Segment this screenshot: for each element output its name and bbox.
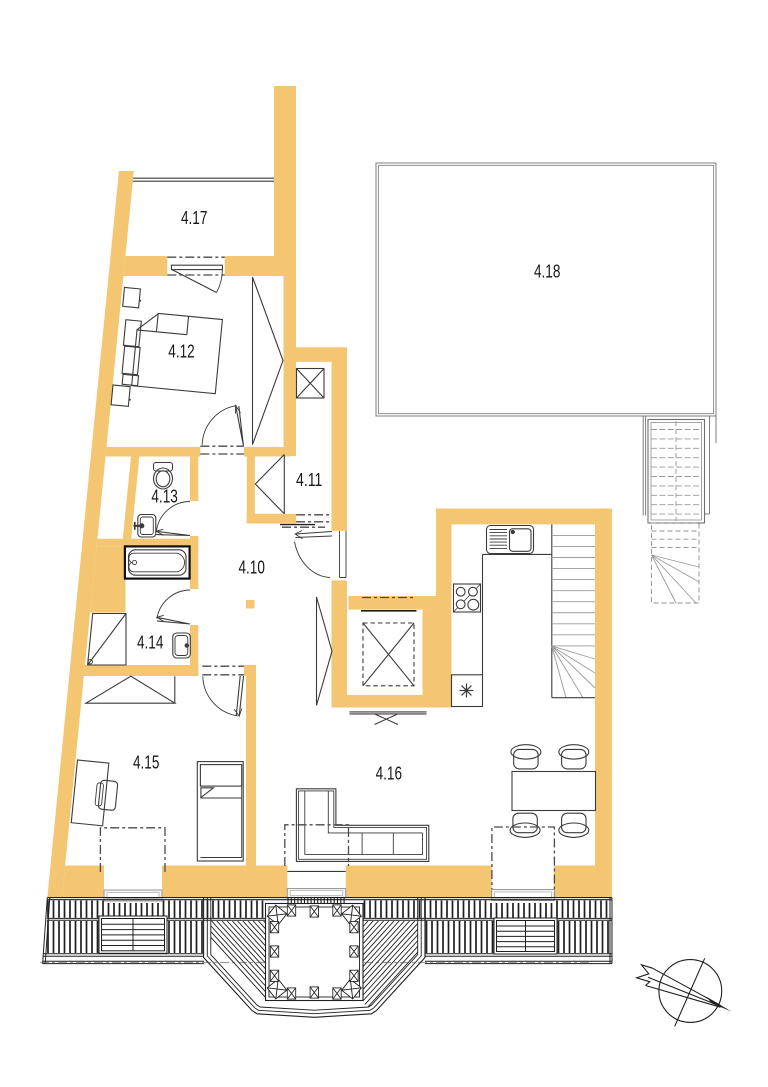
svg-text:4.10: 4.10: [239, 557, 265, 578]
svg-text:4.14: 4.14: [137, 631, 163, 652]
svg-text:4.13: 4.13: [151, 485, 177, 506]
svg-text:4.12: 4.12: [168, 341, 194, 362]
svg-text:4.16: 4.16: [376, 762, 402, 783]
svg-text:4.18: 4.18: [534, 261, 560, 282]
svg-text:4.11: 4.11: [296, 469, 322, 490]
svg-text:4.15: 4.15: [133, 752, 159, 773]
svg-text:4.17: 4.17: [181, 207, 207, 228]
